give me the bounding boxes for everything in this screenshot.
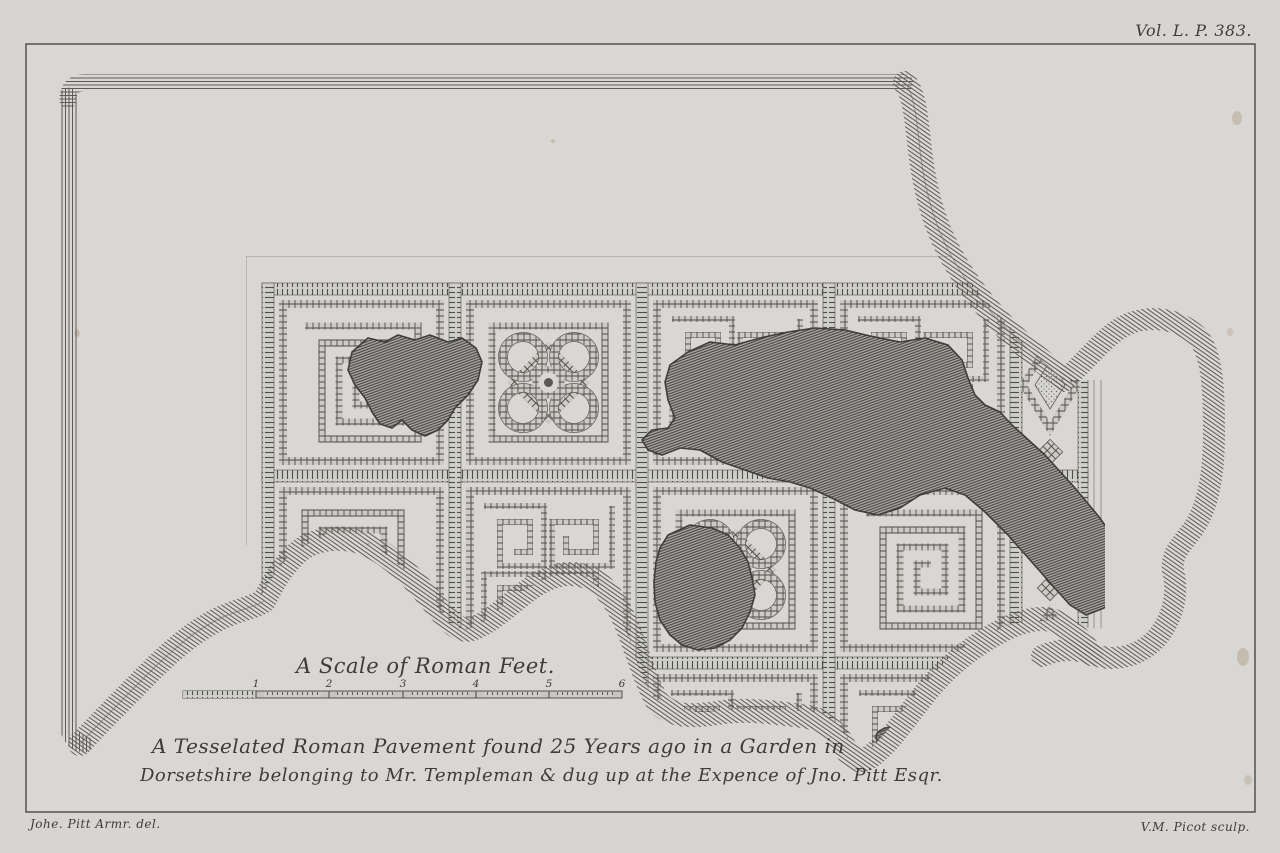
engraved-plate-scan: Vol. L. P. 383. bbox=[0, 0, 1280, 853]
scale-number: 3 bbox=[400, 678, 407, 690]
volume-page-label: Vol. L. P. 383. bbox=[1135, 21, 1252, 40]
panel-rosette bbox=[470, 304, 627, 461]
scale-number: 5 bbox=[546, 678, 553, 690]
scale-title: A Scale of Roman Feet. bbox=[294, 654, 555, 678]
credit-delineator: Johe. Pitt Armr. del. bbox=[27, 817, 161, 831]
scale-number: 6 bbox=[619, 678, 626, 690]
caption-line-2: Dorsetshire belonging to Mr. Templeman &… bbox=[139, 765, 943, 786]
engraving: Vol. L. P. 383. bbox=[0, 0, 1280, 853]
credit-engraver: V.M. Picot sculp. bbox=[1141, 820, 1250, 834]
scale-number: 4 bbox=[472, 678, 480, 690]
scale-number: 2 bbox=[325, 678, 333, 690]
caption-line-1: A Tesselated Roman Pavement found 25 Yea… bbox=[150, 734, 845, 758]
scale-number: 1 bbox=[253, 678, 260, 690]
